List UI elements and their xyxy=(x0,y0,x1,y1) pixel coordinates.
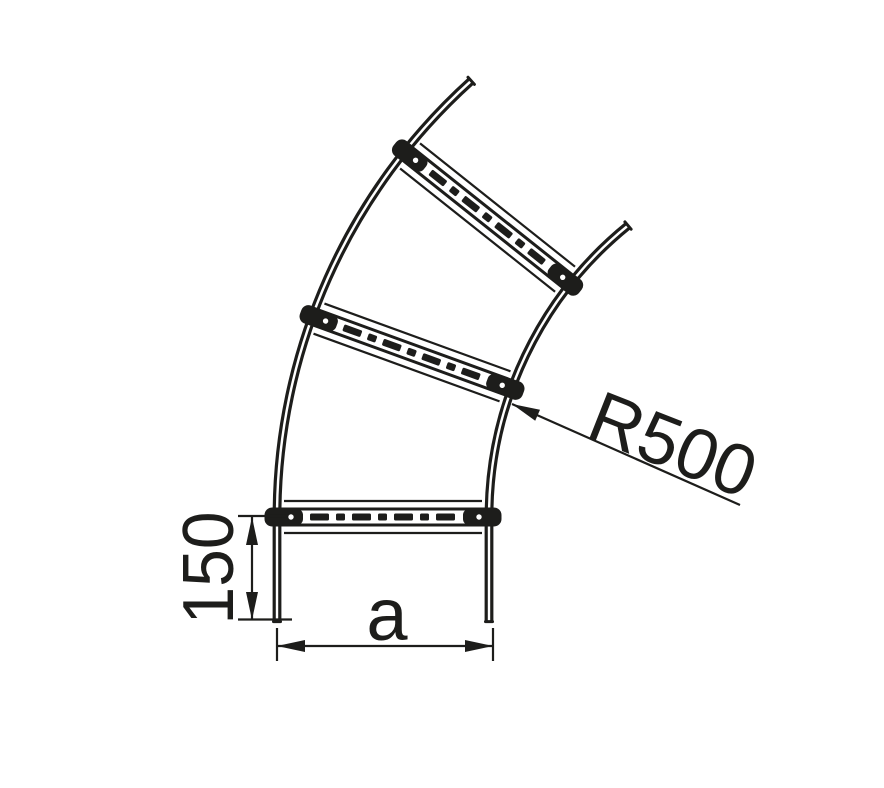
dimension-150-label: 150 xyxy=(169,512,249,625)
technical-drawing-page: 150 a R500 xyxy=(0,0,884,788)
radius-leader-arrow xyxy=(512,404,540,421)
cable-ladder-bend-drawing: 150 a R500 xyxy=(0,0,884,788)
middle-rung xyxy=(297,297,528,407)
radius-label: R500 xyxy=(578,376,767,513)
dimension-a-label: a xyxy=(366,573,408,656)
dimension-a-arrow-right xyxy=(465,640,493,652)
dimension-a: a xyxy=(277,573,493,661)
dimension-a-arrow-left xyxy=(277,640,305,652)
top-rung xyxy=(386,132,589,303)
bottom-rung xyxy=(266,501,500,533)
radius-callout: R500 xyxy=(512,376,767,513)
